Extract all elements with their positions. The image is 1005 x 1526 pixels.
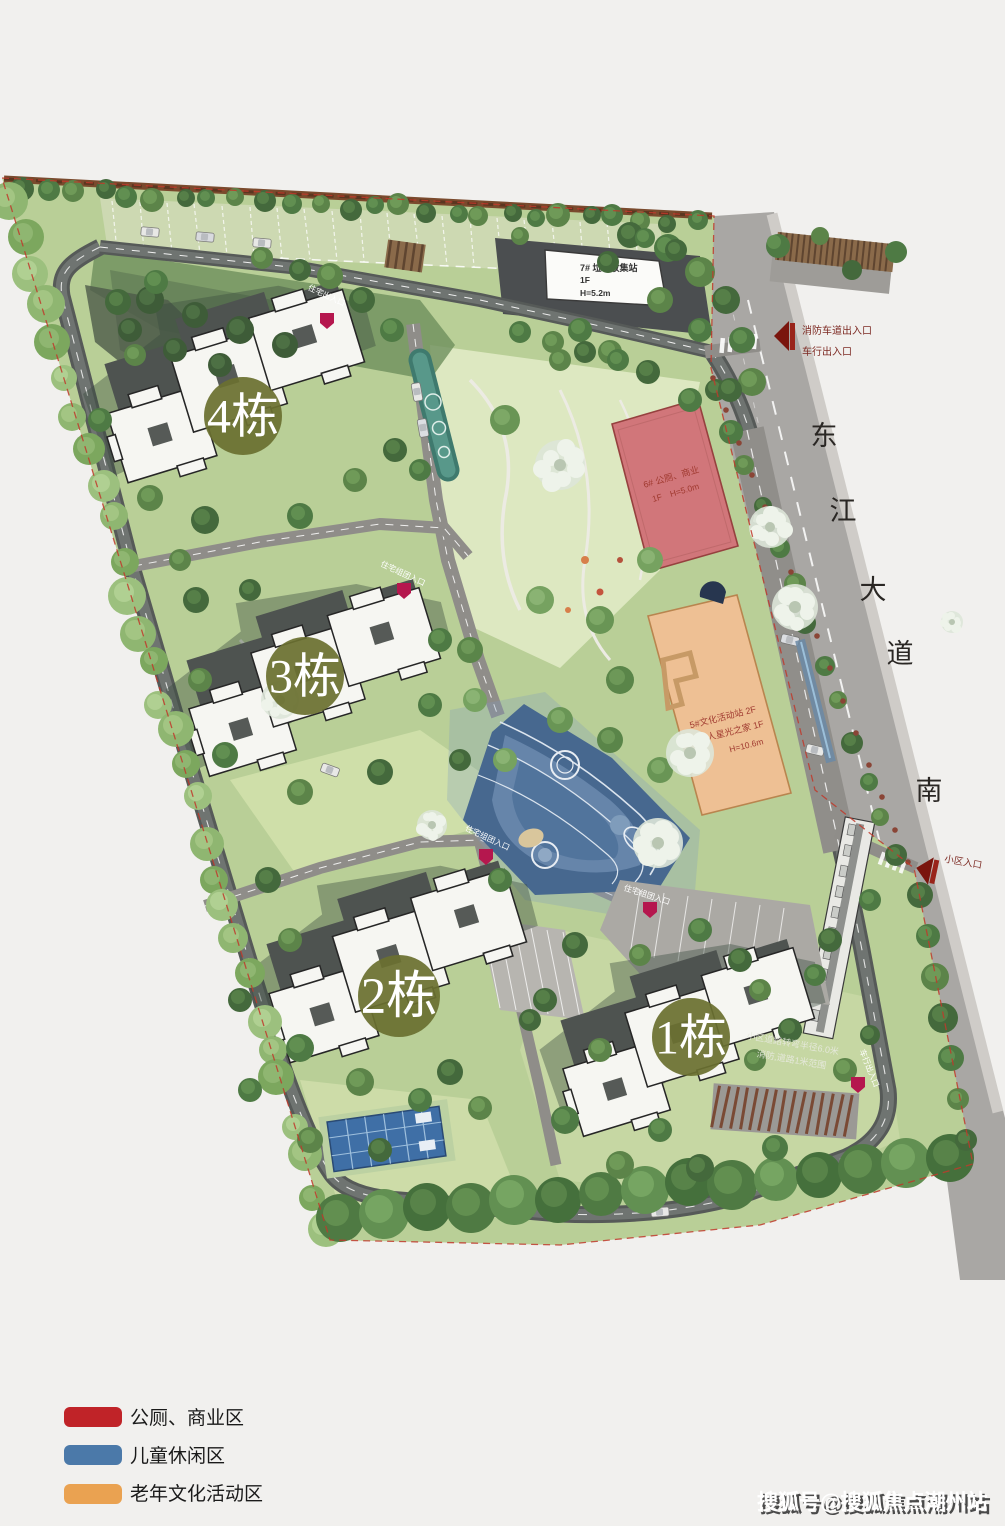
svg-text:1栋: 1栋 xyxy=(655,1011,727,1064)
svg-text:2栋: 2栋 xyxy=(361,969,438,1025)
svg-text:江: 江 xyxy=(830,496,857,526)
svg-text:1F: 1F xyxy=(580,275,590,285)
svg-text:老年文化活动区: 老年文化活动区 xyxy=(130,1483,263,1505)
svg-text:南: 南 xyxy=(916,776,943,806)
svg-text:4栋: 4栋 xyxy=(207,390,279,443)
svg-text:消防车道出入口: 消防车道出入口 xyxy=(802,324,872,337)
svg-text:儿童休闲区: 儿童休闲区 xyxy=(130,1445,225,1467)
svg-text:东: 东 xyxy=(811,421,838,451)
svg-text:公厕、商业区: 公厕、商业区 xyxy=(130,1407,244,1429)
svg-text:3栋: 3栋 xyxy=(269,650,341,703)
svg-text:车行出入口: 车行出入口 xyxy=(802,345,852,358)
svg-text:大: 大 xyxy=(860,575,887,605)
svg-text:道: 道 xyxy=(887,639,914,669)
svg-text:搜狐号@搜狐焦点潮州站: 搜狐号@搜狐焦点潮州站 xyxy=(757,1490,987,1514)
svg-text:H=5.2m: H=5.2m xyxy=(580,288,611,298)
